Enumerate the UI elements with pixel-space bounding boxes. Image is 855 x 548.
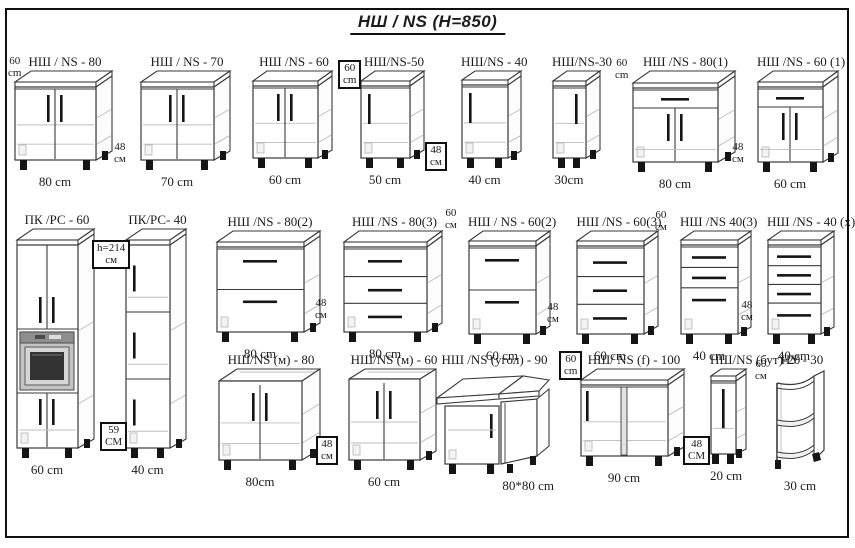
dimension-label-line: 60 [564, 354, 577, 366]
dimension-label: 59СМ [100, 422, 127, 451]
page-title: НШ / NS (H=850) [350, 12, 505, 35]
cabinet-title: ПК /РС - 60 [16, 212, 98, 228]
cabinet-width-label: 80*80 cm [435, 478, 554, 494]
cabinet-width-label: 80 cm [632, 176, 718, 192]
dimension-label-line: 48 [741, 300, 753, 312]
cabinet-title: НШ /NS 40(3) [680, 214, 755, 230]
cabinet-width-label: 60 cm [348, 474, 420, 490]
cabinet-drawing [552, 70, 604, 171]
dimension-label-line: 48 [315, 298, 327, 310]
cabinet-width-label: 20 cm [710, 468, 736, 484]
dimension-label-line: см [430, 157, 442, 169]
cabinet-title: НШ /NS - 80(3) [343, 214, 446, 230]
cabinet-drawing [348, 368, 440, 473]
cabinet-title: НШ / NS - 60(2) [468, 214, 554, 230]
catalog-page: НШ / NS (H=850) НШ / NS - 8080 cmНШ / NS… [0, 0, 855, 548]
dimension-label-line: см [755, 371, 767, 383]
dimension-label-line: 59 [105, 425, 122, 437]
dimension-label-line: см [445, 220, 457, 232]
cabinet-title: НШ/NS-50 [360, 54, 428, 70]
cabinet-drawing [343, 230, 446, 345]
cabinet-title: НШ /NS (угол) - 90 [435, 352, 554, 368]
dimension-label-line: 60 [655, 210, 667, 222]
dimension-label-line: см [321, 451, 333, 463]
dimension-label-line: см [655, 222, 667, 234]
dimension-label-line: h=214 [97, 243, 125, 255]
dimension-label-line: 60 [8, 56, 21, 68]
cabinet-title: НШ/NS (м) - 80 [218, 352, 324, 368]
dimension-label: 60cm [559, 351, 582, 380]
dimension-label-line: см [97, 255, 125, 267]
dimension-label-line: cm [343, 75, 356, 87]
dimension-label-line: 48 [114, 142, 126, 154]
cabinet-width-label: 60 cm [252, 172, 318, 188]
dimension-label-line: 60 [615, 58, 628, 70]
dimension-label-line: cm [564, 366, 577, 378]
cabinet-drawing [774, 368, 830, 477]
dimension-label-line: СМ [105, 437, 122, 449]
dimension-label: 48см [741, 300, 753, 323]
cabinet-drawing [767, 230, 838, 347]
dimension-label-line: 48 [547, 302, 559, 314]
dimension-label-line: 60 [755, 359, 767, 371]
cabinet-title: НШ/ NS (f) - 100 [580, 352, 688, 368]
cabinet-title: НШ / NS - 80 [14, 54, 116, 70]
cabinet-title: НШ/NS (бут)-20 [710, 352, 750, 368]
dimension-label-line: СМ [688, 451, 705, 463]
cabinet-drawing [468, 230, 554, 347]
cabinet-drawing [710, 368, 750, 467]
cabinet-title: НШ /NS - 80(2) [216, 214, 324, 230]
cabinet-width-label: 90 cm [580, 470, 668, 486]
dimension-label: 60cm [615, 58, 628, 81]
cabinet-width-label: 60 cm [16, 462, 78, 478]
dimension-label: 48см [425, 142, 447, 171]
cabinet-width-label: 40 cm [125, 462, 170, 478]
cabinet-width-label: 50 cm [360, 172, 410, 188]
cabinet-drawing [252, 70, 336, 171]
cabinet-title: НШ /NS - 80(1) [632, 54, 739, 70]
cabinet-title: НШ /NS - 60 (1) [757, 54, 842, 70]
cabinet-title: НШ /NS - 60(3) [576, 214, 662, 230]
cabinet-width-label: 80cm [218, 474, 302, 490]
cabinet-drawing [360, 70, 428, 171]
cabinet-drawing [216, 230, 324, 345]
cabinet-drawing [125, 228, 190, 461]
cabinet-title: НШ/NS (м) - 60 [348, 352, 440, 368]
cabinet-drawing [580, 368, 688, 469]
cabinet-title: НШ /NS - 40 (х) [767, 214, 838, 230]
dimension-label: 60см [445, 208, 457, 231]
dimension-label-line: cm [615, 70, 628, 82]
dimension-label: 60cm [338, 60, 361, 89]
dimension-label: 60см [755, 359, 767, 382]
dimension-label-line: 48 [321, 439, 333, 451]
cabinet-width-label: 60 cm [757, 176, 823, 192]
cabinet-drawing [461, 70, 525, 171]
dimension-label-line: 48 [430, 145, 442, 157]
dimension-label-line: cm [8, 68, 21, 80]
dimension-label: h=214см [92, 240, 130, 269]
cabinet-width-label: 40 cm [461, 172, 508, 188]
dimension-label: 60cm [8, 56, 21, 79]
dimension-label: 48см [547, 302, 559, 325]
dimension-label: 60см [655, 210, 667, 233]
dimension-label-line: см [547, 314, 559, 326]
dimension-label-line: см [741, 312, 753, 324]
dimension-label-line: 48 [732, 142, 744, 154]
cabinet-drawing [632, 70, 739, 175]
cabinet-drawing [218, 368, 324, 473]
cabinet-width-label: 80 cm [14, 174, 96, 190]
cabinet-title: НУ - 30 [774, 352, 830, 368]
cabinet-title: ПК/РС- 40 [125, 212, 190, 228]
cabinet-title: НШ /NS - 60 [252, 54, 336, 70]
dimension-label-line: см [114, 154, 126, 166]
dimension-label-line: 60 [445, 208, 457, 220]
dimension-label-line: см [315, 310, 327, 322]
cabinet-width-label: 70 cm [140, 174, 214, 190]
dimension-label: 48см [315, 298, 327, 321]
cabinet-drawing [435, 368, 554, 477]
dimension-label: 48см [316, 436, 338, 465]
dimension-label: 48СМ [683, 436, 710, 465]
cabinet-drawing [14, 70, 116, 173]
dimension-label-line: 60 [343, 63, 356, 75]
dimension-label: 48см [732, 142, 744, 165]
dimension-label-line: см [732, 154, 744, 166]
cabinet-drawing [140, 70, 234, 173]
dimension-label: 48см [114, 142, 126, 165]
cabinet-drawing [16, 228, 98, 461]
cabinet-title: НШ/NS-30 [552, 54, 604, 70]
cabinet-title: НШ / NS - 70 [140, 54, 234, 70]
cabinet-drawing [757, 70, 842, 175]
cabinet-drawing [680, 230, 755, 347]
cabinet-width-label: 30cm [552, 172, 586, 188]
cabinet-title: НШ/NS - 40 [461, 54, 525, 70]
cabinet-width-label: 30 cm [774, 478, 826, 494]
cabinet-drawing [576, 230, 662, 347]
dimension-label-line: 48 [688, 439, 705, 451]
